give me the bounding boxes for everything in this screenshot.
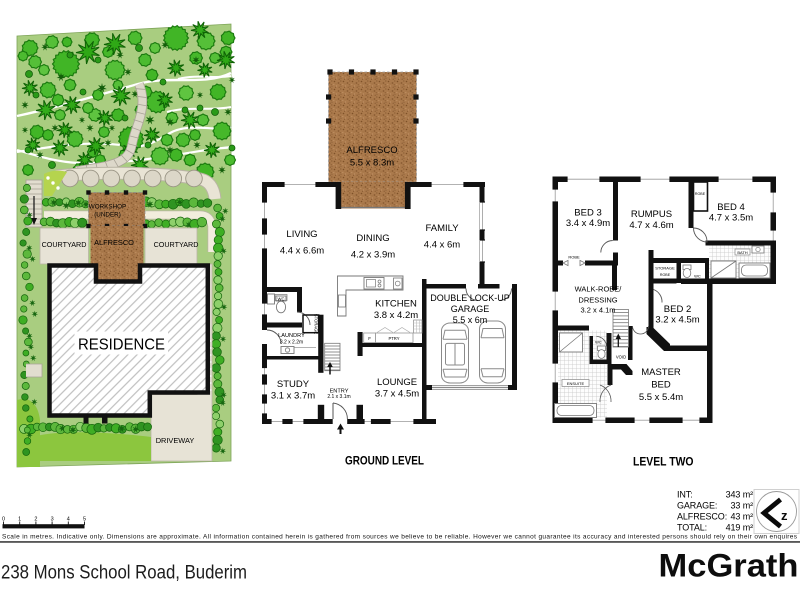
svg-text:ROBE: ROBE [660, 273, 671, 277]
svg-text:TOTAL:: TOTAL: [677, 523, 707, 533]
svg-text:33 m²: 33 m² [730, 501, 753, 511]
svg-text:RESIDENCE: RESIDENCE [78, 336, 165, 353]
svg-text:4.4 x 6m: 4.4 x 6m [424, 240, 461, 251]
svg-text:GARAGE:: GARAGE: [677, 501, 717, 511]
svg-text:DOUBLE LOCK-UP: DOUBLE LOCK-UP [430, 293, 510, 303]
svg-text:WC: WC [694, 274, 701, 279]
svg-text:WC: WC [278, 297, 285, 302]
svg-text:ALFRESCO: ALFRESCO [346, 145, 397, 156]
svg-text:4.7 x 3.5m: 4.7 x 3.5m [709, 213, 753, 224]
svg-text:5.5 x 8.3m: 5.5 x 8.3m [350, 158, 394, 169]
svg-text:BED 3: BED 3 [574, 208, 601, 219]
svg-text:LEVEL TWO: LEVEL TWO [633, 455, 694, 469]
svg-text:z: z [781, 508, 788, 523]
svg-text:ALFRESCO: ALFRESCO [94, 238, 134, 247]
svg-text:STORAGE: STORAGE [655, 266, 675, 271]
svg-text:4.4 x 6.6m: 4.4 x 6.6m [280, 246, 324, 257]
svg-text:3.8 x 4.2m: 3.8 x 4.2m [374, 310, 418, 321]
svg-text:5.5 x 6m: 5.5 x 6m [453, 315, 488, 325]
svg-text:(UNDER): (UNDER) [94, 212, 121, 219]
svg-text:343 m²: 343 m² [726, 490, 754, 500]
svg-text:5.5 x 5.4m: 5.5 x 5.4m [639, 392, 683, 403]
svg-text:BATH: BATH [737, 250, 747, 255]
svg-text:3.2 x 4.5m: 3.2 x 4.5m [655, 315, 699, 326]
svg-text:DRESSING: DRESSING [578, 296, 617, 305]
svg-text:3.2 x 4.1m: 3.2 x 4.1m [580, 306, 615, 315]
svg-text:WALK-ROBE/: WALK-ROBE/ [575, 285, 623, 294]
svg-text:4.7 x 4.6m: 4.7 x 4.6m [629, 220, 673, 231]
svg-text:VOID: VOID [616, 355, 626, 360]
svg-text:KITCHEN: KITCHEN [375, 299, 417, 310]
svg-text:F: F [368, 336, 371, 341]
svg-text:4.2 x 3.9m: 4.2 x 3.9m [351, 250, 395, 261]
svg-text:DINING: DINING [356, 233, 389, 244]
svg-text:3.7 x 4.5m: 3.7 x 4.5m [375, 389, 419, 400]
svg-text:COURTYARD: COURTYARD [154, 240, 199, 249]
svg-text:MASTER: MASTER [641, 367, 681, 378]
svg-text:ROBE: ROBE [568, 255, 580, 260]
svg-text:STUDY: STUDY [277, 379, 310, 390]
svg-text:WC: WC [595, 340, 602, 345]
svg-text:Scale in metres. Indicative on: Scale in metres. Indicative only. Dimens… [2, 534, 798, 541]
svg-text:3.4 x 4.9m: 3.4 x 4.9m [566, 218, 610, 229]
svg-text:3.2 x 2.2m: 3.2 x 2.2m [280, 340, 303, 346]
svg-text:PTRY: PTRY [388, 336, 399, 341]
svg-text:RUMPUS: RUMPUS [631, 209, 672, 220]
svg-text:LIVING: LIVING [286, 229, 317, 240]
svg-text:238 Mons School Road, Buderim: 238 Mons School Road, Buderim [1, 563, 247, 584]
svg-text:INT:: INT: [677, 490, 693, 500]
svg-text:ROBE: ROBE [695, 192, 706, 196]
svg-text:COURTYARD: COURTYARD [42, 240, 87, 249]
svg-text:BED 4: BED 4 [717, 202, 744, 213]
svg-text:2.1 x 3.1m: 2.1 x 3.1m [327, 394, 350, 400]
svg-text:FAMILY: FAMILY [425, 223, 459, 234]
svg-text:BED: BED [651, 380, 671, 391]
svg-text:BED 2: BED 2 [664, 304, 691, 315]
svg-text:DRIVEWAY: DRIVEWAY [156, 436, 195, 445]
svg-text:GARAGE: GARAGE [451, 304, 490, 314]
svg-text:ENSUITE: ENSUITE [567, 381, 585, 386]
svg-text:LOUNGE: LOUNGE [377, 377, 417, 388]
svg-text:43 m²: 43 m² [730, 512, 753, 522]
svg-text:ALFRESCO:: ALFRESCO: [677, 512, 727, 522]
svg-text:STORAGE: STORAGE [314, 314, 319, 335]
svg-text:GROUND LEVEL: GROUND LEVEL [345, 454, 424, 468]
svg-text:McGrath: McGrath [659, 548, 799, 584]
svg-text:3.1 x 3.7m: 3.1 x 3.7m [271, 391, 315, 402]
svg-text:WORKSHOP: WORKSHOP [89, 204, 126, 211]
svg-text:419 m²: 419 m² [726, 523, 754, 533]
svg-text:LAUNDRY: LAUNDRY [278, 333, 305, 339]
